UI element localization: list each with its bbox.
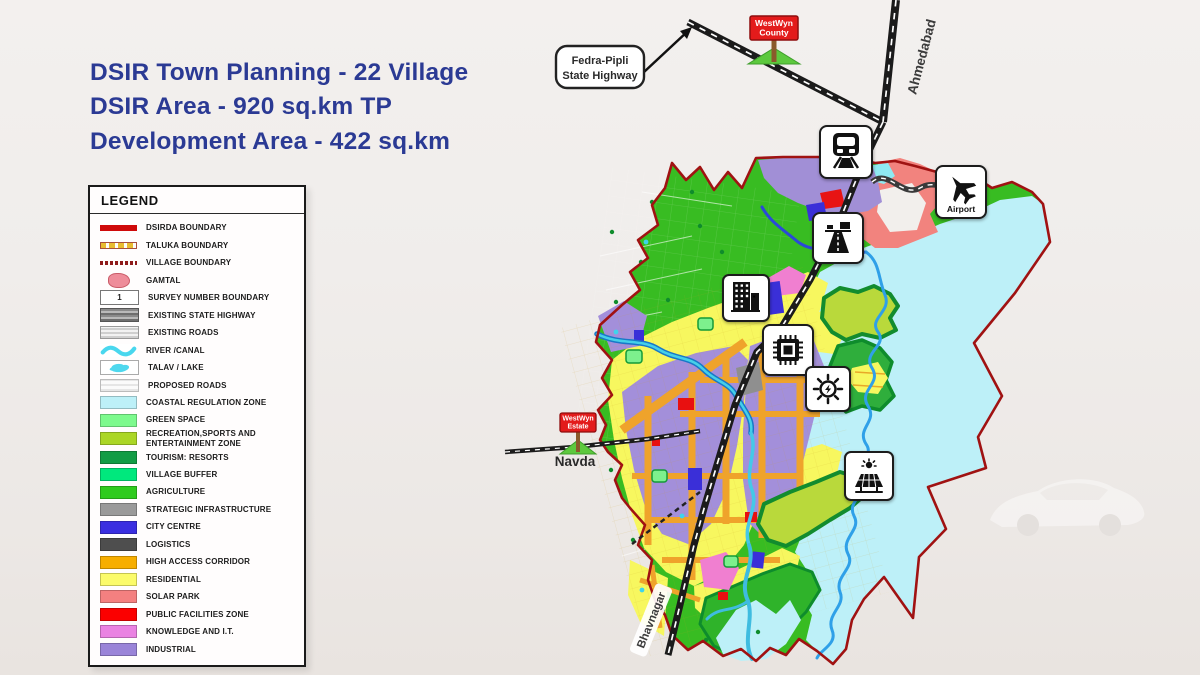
- legend-item-label: EXISTING ROADS: [148, 328, 219, 337]
- city-centre-icon: [723, 275, 769, 321]
- legend-item-label: VILLAGE BOUNDARY: [146, 258, 231, 267]
- legend-item: VILLAGE BUFFER: [100, 466, 294, 483]
- legend-item-label: EXISTING STATE HIGHWAY: [148, 311, 256, 320]
- legend-item-label: PUBLIC FACILITIES ZONE: [146, 610, 249, 619]
- legend-swatch: [100, 225, 137, 231]
- legend-item: SOLAR PARK: [100, 588, 294, 605]
- legend-item: KNOWLEDGE AND I.T.: [100, 623, 294, 640]
- legend-swatch: [100, 326, 139, 339]
- legend-item-label: GREEN SPACE: [146, 415, 205, 424]
- callout-line2: State Highway: [562, 70, 638, 82]
- estate-sign-line1: WestWyn: [562, 416, 593, 423]
- legend-item: DSIRDA BOUNDARY: [100, 219, 294, 236]
- title-line-3: Development Area - 422 sq.km: [90, 125, 468, 159]
- legend-title: LEGEND: [90, 187, 304, 214]
- legend-item: AGRICULTURE: [100, 483, 294, 500]
- semiconductor-icon: [763, 325, 813, 375]
- legend-item-label: SURVEY NUMBER BOUNDARY: [148, 293, 269, 302]
- planning-zones: [560, 157, 1050, 664]
- legend-item-label: TALUKA BOUNDARY: [146, 241, 228, 250]
- legend-swatch: [100, 308, 139, 322]
- legend-swatch: [100, 344, 137, 357]
- legend-swatch: [100, 486, 137, 499]
- train-station-icon: [820, 126, 872, 178]
- title-line-2: DSIR Area - 920 sq.km TP: [90, 90, 468, 124]
- legend-item-label: GAMTAL: [146, 276, 181, 285]
- fedra-pipli-callout: Fedra-Pipli State Highway: [556, 27, 692, 88]
- legend-swatch: [100, 274, 137, 287]
- legend-item: EXISTING ROADS: [100, 324, 294, 341]
- airport-icon: Airport: [936, 166, 986, 218]
- legend-swatch: [100, 521, 137, 534]
- legend-swatch: [100, 414, 137, 427]
- legend-item-label: RESIDENTIAL: [146, 575, 201, 584]
- airport-label: Airport: [947, 204, 976, 214]
- legend-item-label: KNOWLEDGE AND I.T.: [146, 627, 234, 636]
- legend-item: TALUKA BOUNDARY: [100, 236, 294, 253]
- legend-item: PROPOSED ROADS: [100, 376, 294, 393]
- county-sign-line1: WestWyn: [755, 18, 793, 28]
- legend-item: STRATEGIC INFRASTRUCTURE: [100, 501, 294, 518]
- ahmedabad-label: Ahmedabad: [904, 18, 938, 97]
- legend-swatch: 1: [100, 290, 139, 305]
- callout-line1: Fedra-Pipli: [572, 55, 629, 67]
- navda-label: Navda: [555, 454, 596, 469]
- title-block: DSIR Town Planning - 22 Village DSIR Are…: [90, 56, 468, 159]
- legend-item: GAMTAL: [100, 271, 294, 288]
- ahmedabad-highway: [883, 0, 896, 122]
- legend-item-label: TALAV / LAKE: [148, 363, 204, 372]
- legend-item-label: CITY CENTRE: [146, 522, 201, 531]
- legend-item-label: HIGH ACCESS CORRIDOR: [146, 557, 250, 566]
- legend: LEGEND DSIRDA BOUNDARY TALUKA BOUNDARY V…: [88, 185, 306, 667]
- legend-item: COASTAL REGULATION ZONE: [100, 394, 294, 411]
- expressway-icon: [813, 213, 863, 263]
- legend-item: INDUSTRIAL: [100, 641, 294, 658]
- legend-item: GREEN SPACE: [100, 411, 294, 428]
- legend-item-label: PROPOSED ROADS: [148, 381, 227, 390]
- solar-park-icon: [845, 452, 893, 500]
- legend-item: 1 SURVEY NUMBER BOUNDARY: [100, 289, 294, 306]
- legend-item: TOURISM: RESORTS: [100, 448, 294, 465]
- legend-item-label: INDUSTRIAL: [146, 645, 196, 654]
- legend-item-label: COASTAL REGULATION ZONE: [146, 398, 266, 407]
- legend-swatch: [100, 451, 137, 464]
- legend-swatch: [100, 261, 137, 265]
- legend-item-label: DSIRDA BOUNDARY: [146, 223, 227, 232]
- legend-item: RIVER /CANAL: [100, 341, 294, 358]
- legend-item: VILLAGE BOUNDARY: [100, 254, 294, 271]
- legend-swatch: [100, 608, 137, 621]
- legend-item: RESIDENTIAL: [100, 571, 294, 588]
- callout-arrow: [644, 31, 688, 72]
- legend-item: HIGH ACCESS CORRIDOR: [100, 553, 294, 570]
- legend-swatch: [100, 432, 137, 445]
- title-line-1: DSIR Town Planning - 22 Village: [90, 56, 468, 90]
- legend-item: RECREATION,SPORTS AND ENTERTAINMENT ZONE: [100, 429, 294, 449]
- legend-item-label: TOURISM: RESORTS: [146, 453, 229, 462]
- legend-items: DSIRDA BOUNDARY TALUKA BOUNDARY VILLAGE …: [90, 214, 304, 665]
- legend-swatch: [100, 538, 137, 551]
- legend-item-label: RECREATION,SPORTS AND ENTERTAINMENT ZONE: [146, 429, 294, 447]
- estate-sign-line2: Estate: [567, 424, 588, 431]
- legend-swatch: [100, 556, 137, 569]
- legend-swatch: [100, 379, 139, 392]
- legend-item: CITY CENTRE: [100, 518, 294, 535]
- legend-swatch: [100, 360, 139, 375]
- legend-swatch: [100, 468, 137, 481]
- legend-item-label: RIVER /CANAL: [146, 346, 205, 355]
- power-plant-icon: [806, 367, 850, 411]
- legend-item: EXISTING STATE HIGHWAY: [100, 306, 294, 323]
- legend-item-label: AGRICULTURE: [146, 487, 205, 496]
- legend-item-label: SOLAR PARK: [146, 592, 200, 601]
- stage: { "title": { "line1": "DSIR Town Plannin…: [0, 0, 1200, 675]
- legend-swatch: [100, 396, 137, 409]
- legend-item: LOGISTICS: [100, 536, 294, 553]
- legend-item-label: VILLAGE BUFFER: [146, 470, 217, 479]
- legend-swatch: [100, 590, 137, 603]
- ghost-car: [990, 479, 1144, 536]
- legend-item: TALAV / LAKE: [100, 359, 294, 376]
- legend-swatch: [100, 625, 137, 638]
- legend-swatch: [100, 242, 137, 249]
- county-sign-line2: County: [759, 28, 789, 38]
- legend-item: PUBLIC FACILITIES ZONE: [100, 606, 294, 623]
- legend-item-label: STRATEGIC INFRASTRUCTURE: [146, 505, 271, 514]
- legend-swatch: [100, 643, 137, 656]
- legend-item-label: LOGISTICS: [146, 540, 190, 549]
- legend-swatch: [100, 503, 137, 516]
- legend-swatch: [100, 573, 137, 586]
